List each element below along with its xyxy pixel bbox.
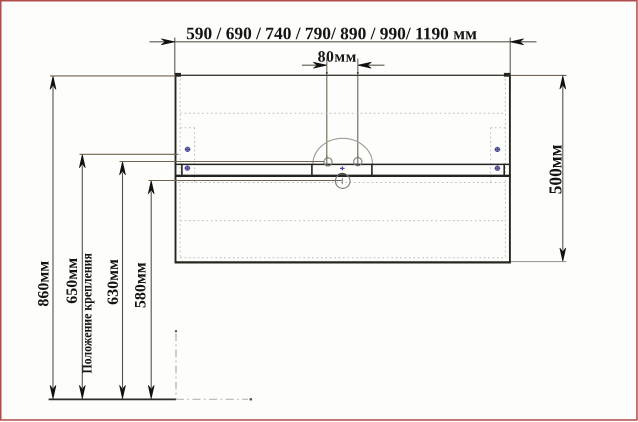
svg-text:80мм: 80мм (318, 49, 357, 66)
svg-text:860мм: 860мм (35, 261, 52, 307)
svg-text:590 / 690 / 740 / 790/ 890 / 9: 590 / 690 / 740 / 790/ 890 / 990/ 1190 м… (186, 23, 477, 43)
svg-text:Положение крепления: Положение крепления (80, 253, 95, 374)
svg-text:500мм: 500мм (545, 144, 565, 194)
svg-text:650мм: 650мм (64, 258, 81, 304)
svg-text:580мм: 580мм (133, 262, 150, 308)
svg-text:630мм: 630мм (105, 259, 122, 305)
